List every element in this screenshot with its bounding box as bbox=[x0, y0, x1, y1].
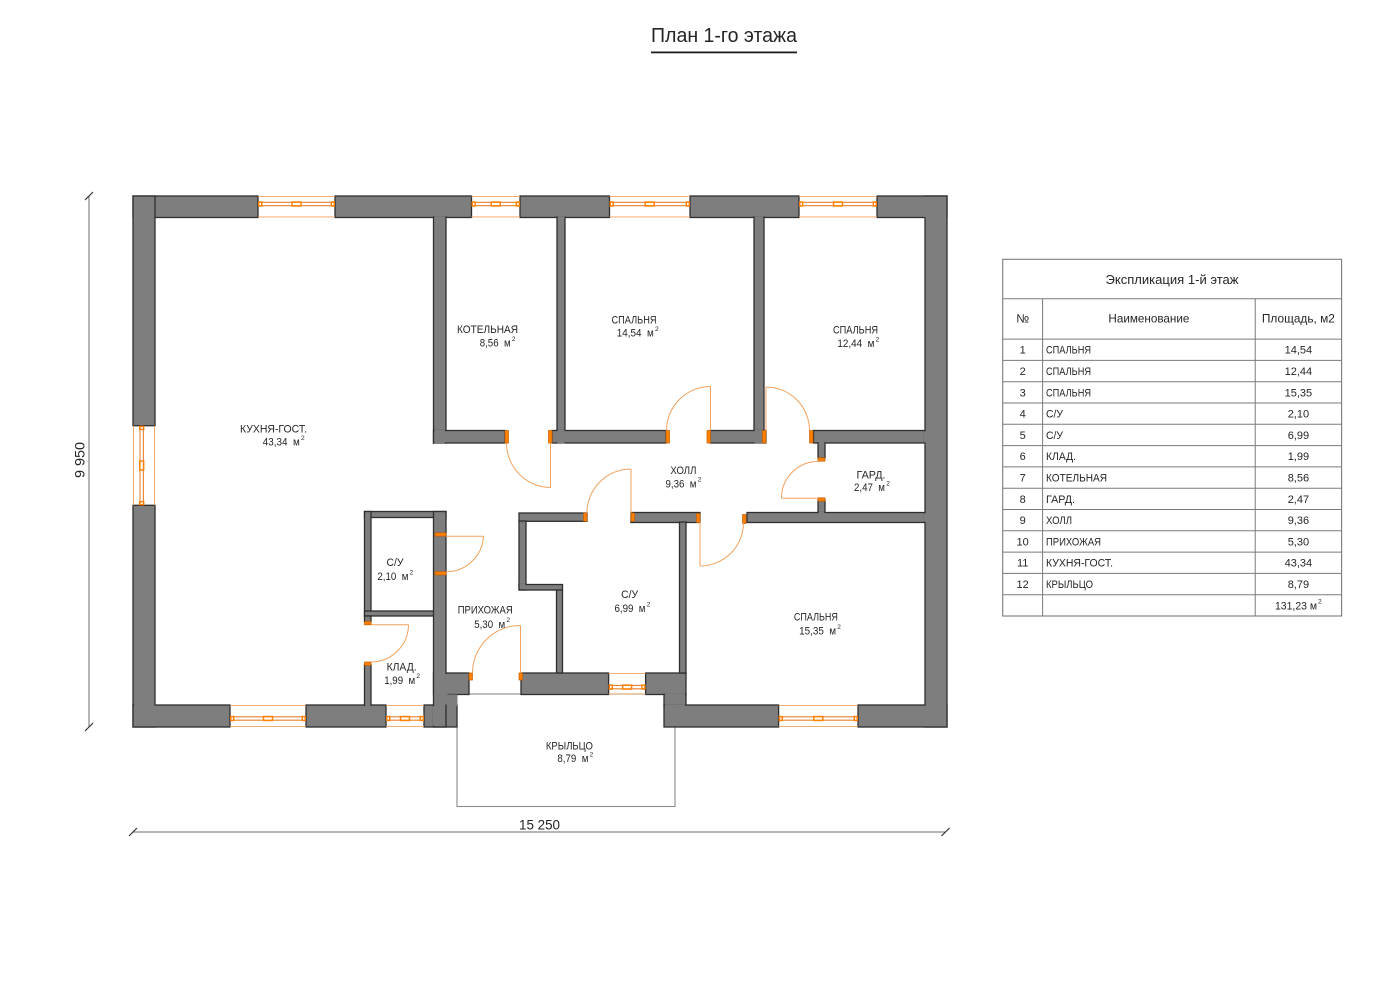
svg-text:6,99 м: 6,99 м bbox=[615, 603, 646, 615]
svg-text:9,36: 9,36 bbox=[1288, 515, 1309, 527]
svg-text:2: 2 bbox=[698, 477, 702, 484]
svg-text:131,23 м: 131,23 м bbox=[1275, 600, 1317, 612]
svg-text:14,54: 14,54 bbox=[1285, 345, 1313, 357]
svg-text:КЛАД.: КЛАД. bbox=[1046, 451, 1076, 463]
svg-text:4: 4 bbox=[1020, 409, 1026, 421]
svg-text:КРЫЛЬЦО: КРЫЛЬЦО bbox=[1046, 579, 1093, 591]
svg-text:СПАЛЬНЯ: СПАЛЬНЯ bbox=[1046, 387, 1091, 399]
svg-text:8,79 м: 8,79 м bbox=[557, 753, 588, 765]
svg-text:8: 8 bbox=[1020, 494, 1026, 506]
svg-text:План 1-го этажа: План 1-го этажа bbox=[651, 25, 798, 47]
svg-text:10: 10 bbox=[1017, 536, 1029, 548]
svg-text:СПАЛЬНЯ: СПАЛЬНЯ bbox=[612, 314, 657, 326]
svg-text:2,10 м: 2,10 м bbox=[377, 571, 408, 583]
svg-text:12,44: 12,44 bbox=[1285, 366, 1313, 378]
svg-text:Площадь, м2: Площадь, м2 bbox=[1262, 312, 1335, 326]
svg-text:9 950: 9 950 bbox=[72, 442, 88, 478]
svg-text:15 250: 15 250 bbox=[519, 817, 560, 833]
svg-text:С/У: С/У bbox=[1046, 409, 1064, 421]
svg-text:8,56 м: 8,56 м bbox=[480, 338, 511, 350]
svg-text:2: 2 bbox=[506, 617, 510, 624]
svg-text:9,36 м: 9,36 м bbox=[666, 478, 697, 490]
svg-text:2: 2 bbox=[876, 337, 880, 344]
svg-text:2: 2 bbox=[1318, 599, 1322, 606]
svg-text:2,10: 2,10 bbox=[1288, 409, 1309, 421]
svg-text:Наименование: Наименование bbox=[1108, 312, 1189, 326]
svg-text:ХОЛЛ: ХОЛЛ bbox=[670, 465, 696, 477]
svg-text:КЛАД.: КЛАД. bbox=[387, 661, 417, 673]
svg-text:СПАЛЬНЯ: СПАЛЬНЯ bbox=[1046, 345, 1091, 357]
svg-text:8,79: 8,79 bbox=[1288, 579, 1309, 591]
svg-text:2: 2 bbox=[886, 480, 890, 487]
svg-text:5,30 м: 5,30 м bbox=[474, 619, 505, 631]
svg-text:2: 2 bbox=[837, 624, 841, 631]
svg-text:1,99: 1,99 bbox=[1288, 451, 1309, 463]
svg-text:2: 2 bbox=[655, 326, 659, 333]
svg-text:№: № bbox=[1016, 312, 1029, 326]
svg-text:2: 2 bbox=[410, 569, 414, 576]
svg-text:6,99: 6,99 bbox=[1288, 430, 1309, 442]
svg-text:9: 9 bbox=[1020, 515, 1026, 527]
svg-text:ПРИХОЖАЯ: ПРИХОЖАЯ bbox=[1046, 536, 1101, 548]
svg-text:2: 2 bbox=[512, 336, 516, 343]
svg-text:Экспликация 1-й этаж: Экспликация 1-й этаж bbox=[1106, 272, 1239, 287]
svg-text:СПАЛЬНЯ: СПАЛЬНЯ bbox=[794, 611, 838, 623]
svg-text:14,54 м: 14,54 м bbox=[617, 328, 654, 340]
svg-text:5,30: 5,30 bbox=[1288, 536, 1309, 548]
svg-text:2: 2 bbox=[301, 435, 305, 442]
svg-text:12: 12 bbox=[1017, 579, 1029, 591]
svg-text:С/У: С/У bbox=[621, 589, 639, 601]
svg-text:1: 1 bbox=[1020, 345, 1026, 357]
svg-text:2: 2 bbox=[590, 751, 594, 758]
svg-text:43,34: 43,34 bbox=[1285, 558, 1313, 570]
svg-text:ГАРД.: ГАРД. bbox=[1046, 494, 1075, 506]
svg-text:С/У: С/У bbox=[387, 557, 405, 569]
svg-text:8,56: 8,56 bbox=[1288, 473, 1309, 485]
svg-text:ГАРД.: ГАРД. bbox=[857, 469, 886, 481]
svg-text:1,99 м: 1,99 м bbox=[384, 675, 415, 687]
svg-text:2,47: 2,47 bbox=[1288, 494, 1309, 506]
svg-text:5: 5 bbox=[1020, 430, 1026, 442]
svg-text:ХОЛЛ: ХОЛЛ bbox=[1046, 515, 1072, 527]
svg-text:43,34 м: 43,34 м bbox=[263, 436, 300, 448]
svg-text:7: 7 bbox=[1020, 473, 1026, 485]
svg-text:СПАЛЬНЯ: СПАЛЬНЯ bbox=[833, 325, 878, 337]
svg-text:15,35: 15,35 bbox=[1285, 387, 1313, 399]
svg-text:6: 6 bbox=[1020, 451, 1026, 463]
svg-text:15,35 м: 15,35 м bbox=[799, 626, 836, 638]
svg-text:11: 11 bbox=[1017, 558, 1028, 570]
svg-text:КОТЕЛЬНАЯ: КОТЕЛЬНАЯ bbox=[457, 324, 518, 336]
svg-text:2,47 м: 2,47 м bbox=[854, 482, 885, 494]
svg-text:2: 2 bbox=[416, 673, 420, 680]
svg-text:СПАЛЬНЯ: СПАЛЬНЯ bbox=[1046, 366, 1091, 378]
svg-text:С/У: С/У bbox=[1046, 430, 1064, 442]
svg-text:КОТЕЛЬНАЯ: КОТЕЛЬНАЯ bbox=[1046, 473, 1107, 485]
svg-text:КРЫЛЬЦО: КРЫЛЬЦО bbox=[546, 741, 593, 753]
svg-text:12,44 м: 12,44 м bbox=[837, 338, 874, 350]
svg-text:КУХНЯ-ГОСТ.: КУХНЯ-ГОСТ. bbox=[1046, 558, 1113, 570]
svg-text:2: 2 bbox=[1020, 366, 1026, 378]
svg-text:КУХНЯ-ГОСТ.: КУХНЯ-ГОСТ. bbox=[240, 423, 307, 435]
svg-text:ПРИХОЖАЯ: ПРИХОЖАЯ bbox=[458, 605, 513, 617]
svg-text:2: 2 bbox=[647, 601, 651, 608]
svg-text:3: 3 bbox=[1020, 387, 1026, 399]
